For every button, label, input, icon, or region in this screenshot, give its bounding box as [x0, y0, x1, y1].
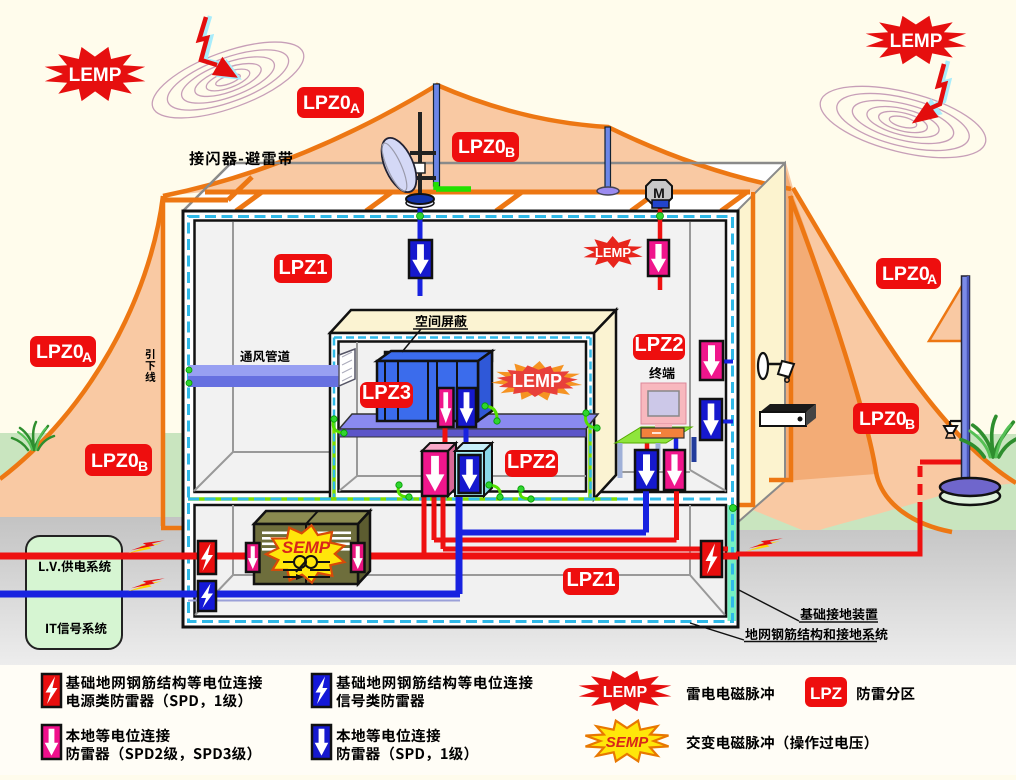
svg-text:LPZ1: LPZ1 [567, 569, 616, 591]
svg-text:LPZ: LPZ [810, 684, 842, 703]
svg-text:LEMP: LEMP [512, 371, 562, 391]
svg-text:LPZ2: LPZ2 [635, 334, 684, 356]
svg-text:SEMP: SEMP [282, 538, 331, 557]
svg-text:LEMP: LEMP [69, 65, 122, 86]
svg-text:SEMP: SEMP [606, 734, 650, 751]
svg-text:LPZ2: LPZ2 [507, 451, 556, 473]
svg-text:LPZ0: LPZ0 [458, 136, 506, 158]
svg-text:LPZ0: LPZ0 [36, 341, 84, 363]
svg-text:LEMP: LEMP [890, 31, 943, 52]
svg-text:LEMP: LEMP [603, 684, 648, 701]
svg-text:LPZ0: LPZ0 [303, 92, 351, 114]
svg-text:LPZ3: LPZ3 [362, 382, 411, 404]
svg-text:LPZ1: LPZ1 [279, 257, 328, 279]
svg-text:M: M [653, 185, 665, 201]
svg-text:B: B [905, 416, 915, 432]
svg-text:LPZ0: LPZ0 [882, 263, 930, 285]
svg-text:B: B [505, 144, 515, 160]
svg-text:A: A [350, 100, 360, 116]
svg-text:LPZ0: LPZ0 [91, 450, 139, 472]
svg-text:A: A [82, 349, 92, 365]
svg-text:B: B [138, 458, 148, 474]
svg-text:LPZ0: LPZ0 [859, 408, 907, 430]
svg-text:A: A [927, 271, 937, 287]
svg-text:LEMP: LEMP [595, 245, 631, 260]
